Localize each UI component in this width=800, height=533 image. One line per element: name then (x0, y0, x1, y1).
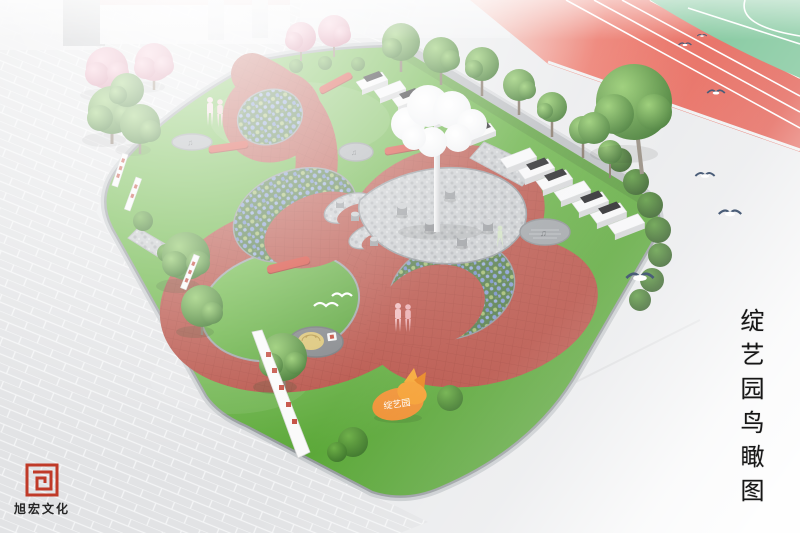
aerial-render-page: ♫ ♫ ♫ (0, 0, 800, 533)
studio-logo-text: 旭宏文化 (14, 500, 98, 517)
garden-aerial-render: ♫ ♫ ♫ (0, 0, 800, 533)
vertical-title: 绽艺园鸟瞰图 (733, 308, 768, 523)
studio-logo-seal (24, 462, 60, 498)
fog-overlay-bottom-right (0, 0, 800, 533)
studio-logo: 旭宏文化 (14, 462, 98, 517)
